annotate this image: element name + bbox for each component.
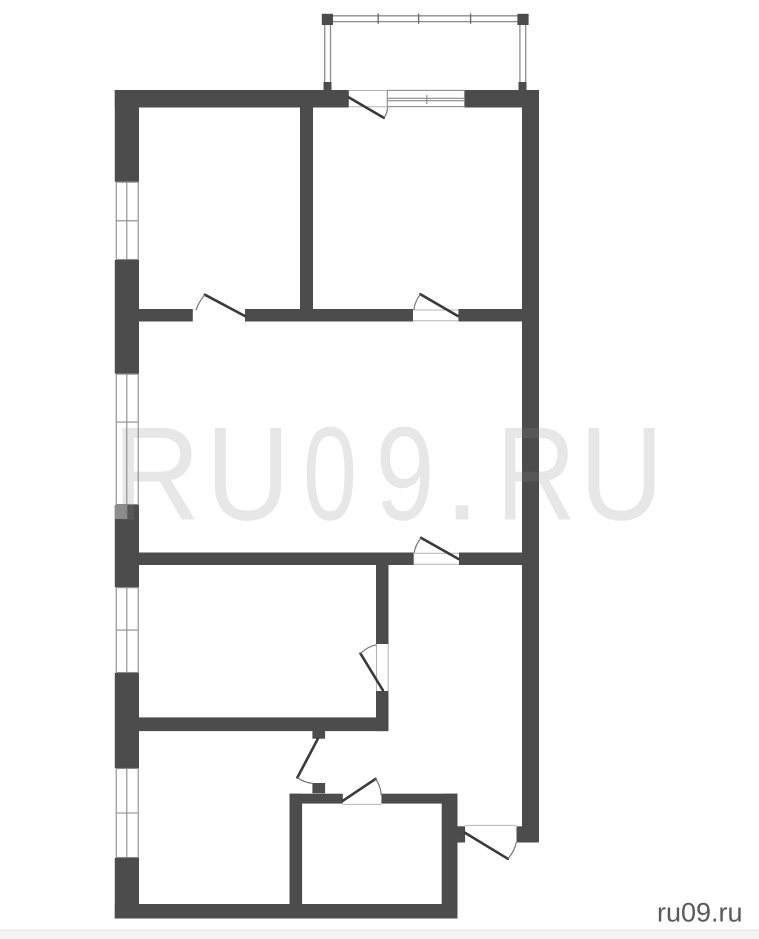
svg-text:R: R bbox=[496, 401, 576, 549]
svg-text:0: 0 bbox=[303, 401, 357, 549]
svg-text:R: R bbox=[113, 401, 201, 549]
svg-text:U: U bbox=[580, 401, 664, 549]
svg-text:9: 9 bbox=[376, 401, 435, 549]
svg-text:.: . bbox=[444, 401, 481, 549]
svg-text:ru09.ru: ru09.ru bbox=[657, 898, 743, 928]
svg-text:U: U bbox=[206, 401, 290, 549]
